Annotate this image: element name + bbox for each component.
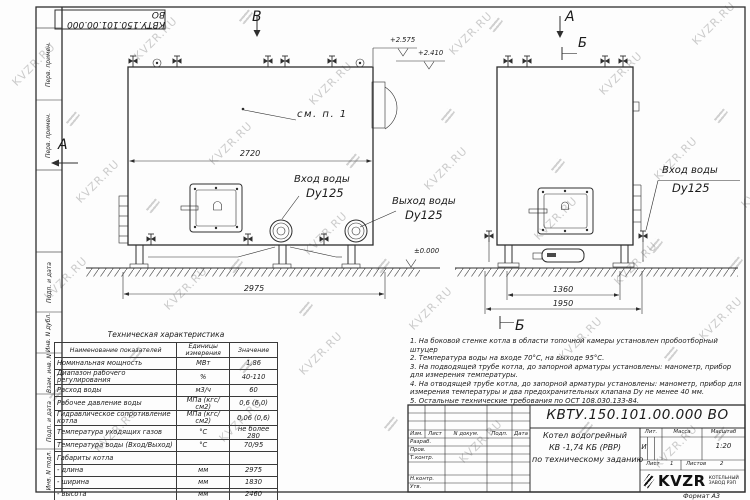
watermark-text: KVZR.RU: [447, 9, 496, 58]
col-izm: Изм.: [408, 432, 425, 437]
table-row: Температура воды (Вход/Выход)°С70/95: [55, 440, 278, 452]
kvzr-logo-icon: [642, 474, 655, 489]
level-2410: +2.410: [418, 50, 443, 57]
watermark-text: KVZR.RU: [302, 209, 351, 258]
watermark-text: KVZR.RU: [307, 59, 356, 108]
watermark-logo-icon: [550, 157, 565, 174]
section-label-b-top: Б: [578, 37, 587, 50]
watermark-logo-icon: [375, 257, 390, 274]
note-item: 2. Температура воды на входе 70°С, на вы…: [410, 354, 744, 363]
spec-table-title: Техническая характеристика: [54, 330, 278, 339]
sheets-value: 2: [720, 462, 723, 467]
dim-1950: 1950: [538, 300, 588, 308]
scale-value: 1:20: [702, 443, 745, 450]
stamp-perv-primen-2: Перв. примен.: [36, 100, 62, 170]
col-sign: Подп.: [487, 432, 512, 437]
row-utv: Утв.: [410, 485, 421, 490]
note-item: 3. На подводящей трубе котла, до запорно…: [410, 363, 744, 380]
watermark-logo-icon: [345, 152, 360, 169]
spec-header-name: Наименование показателей: [55, 343, 177, 358]
table-row: - высотамм2460: [55, 489, 278, 500]
doc-number-top-text: КВТУ.150.101.00.000 ВО: [55, 10, 165, 30]
spec-header-units: Единицы измерения: [177, 343, 230, 358]
watermark-text: KVZR.RU: [162, 264, 211, 313]
watermark-text: KVZR.RU: [422, 144, 471, 193]
spec-header-row: Наименование показателей Единицы измерен…: [55, 343, 278, 358]
watermark-text: KVZR.RU: [74, 157, 123, 206]
watermark-logo-icon: [440, 107, 455, 124]
stamp-perv-primen-1: Перв. примен.: [36, 28, 62, 100]
table-row: Диапазон рабочего регулирования%40-110: [55, 370, 278, 384]
view-label-a-left: А: [58, 138, 68, 152]
watermark-text: KVZR.RU: [690, 0, 739, 48]
sheets-label: Листов: [686, 462, 706, 467]
watermark-text: KVZR.RU: [297, 329, 346, 378]
kvzr-logo-subtext: КОТЕЛЬНЫЙ ЗАВОД РЭП: [709, 476, 739, 487]
table-row: Рабочее давление водыМПа (кгс/см2)0,6 (6…: [55, 397, 278, 411]
dim-2975: 2975: [229, 285, 279, 293]
row-prov: Пров.: [410, 448, 426, 453]
watermark-text: KVZR.RU: [207, 119, 256, 168]
watermark-text: KVZR.RU: [457, 417, 506, 466]
outlet-dn: Dy125: [405, 210, 443, 222]
row-razrab: Разраб.: [410, 440, 431, 445]
spec-header-value: Значение: [230, 343, 278, 358]
row-nkontr: Н.контр.: [410, 477, 434, 482]
watermark-text: KVZR.RU: [697, 294, 746, 343]
table-row: Расход водым3/ч60: [55, 384, 278, 396]
watermark-text: KVZR.RU: [597, 49, 646, 98]
stamp-podp-data-1: Подп. и дата: [36, 252, 62, 312]
col-doc: N докум.: [445, 432, 487, 437]
title-doc-number: КВТУ.150.101.00.000 ВО: [530, 409, 745, 423]
note-item: 4. На отводящей трубе котла, до запорной…: [410, 380, 744, 397]
watermark-logo-icon: [383, 415, 398, 432]
table-row: Габариты котла: [55, 452, 278, 464]
view-label-a-right: А: [565, 10, 575, 24]
watermark-logo-icon: [145, 197, 160, 214]
watermark-logo-icon: [728, 255, 743, 272]
section-label-b-bottom: Б: [515, 319, 525, 333]
kvzr-logo-text: KVZR: [658, 472, 706, 490]
outlet-label: Выход воды: [392, 197, 456, 207]
watermark-logo-icon: [238, 8, 253, 25]
watermark-text: KVZR.RU: [532, 194, 581, 243]
kvzr-sub-2: ЗАВОД РЭП: [709, 481, 739, 486]
drawing-sheet: KVZR.RUKVZR.RUKVZR.RUKVZR.RUKVZR.RUKVZR.…: [0, 0, 750, 500]
watermark-text: KVZR.RU: [739, 162, 750, 211]
table-row: - ширинамм1830: [55, 476, 278, 488]
product-name-1: Котел водогрейный: [532, 432, 638, 440]
see-note-callout: см. п. 1: [297, 110, 348, 120]
table-row: Температура уходящих газов°Сне более 280: [55, 425, 278, 439]
doc-number-top: КВТУ.150.101.00.000 ВО: [55, 10, 165, 29]
inlet-dn-right: Dy125: [672, 183, 710, 195]
sheet-value: 1: [670, 462, 673, 467]
watermark-logo-icon: [298, 300, 313, 317]
sheet-label: Лист: [646, 462, 660, 467]
row-tkontr: Т.контр.: [410, 456, 433, 461]
company-logo: KVZR КОТЕЛЬНЫЙ ЗАВОД РЭП: [642, 471, 744, 491]
note-item: 5. Остальные технические требования по О…: [410, 397, 744, 406]
mass-header: Масса: [662, 430, 702, 435]
spec-table: Наименование показателей Единицы измерен…: [54, 342, 278, 500]
watermark-text: KVZR.RU: [407, 284, 456, 333]
dim-1360: 1360: [538, 286, 588, 294]
lit-value: И: [640, 444, 648, 451]
product-name-3: по техническому заданию: [532, 456, 638, 464]
col-list: Лист: [425, 432, 445, 437]
lit-header: Лит.: [640, 430, 662, 435]
spec-table-body: Номинальная мощностьМВт1,86Диапазон рабо…: [55, 358, 278, 500]
notes-list: 1. На боковой стенке котла в области топ…: [410, 337, 744, 405]
inlet-label-right: Вход воды: [662, 166, 718, 176]
dim-2720: 2720: [225, 150, 275, 158]
table-row: - длинамм2975: [55, 464, 278, 476]
note-item: 1. На боковой стенке котла в области топ…: [410, 337, 744, 354]
watermark-logo-icon: [228, 257, 243, 274]
view-label-b: В: [252, 10, 262, 24]
col-date: Дата: [512, 432, 530, 437]
product-name-2: КВ -1,74 КБ (РВР): [532, 444, 638, 452]
format-label: Формат А3: [683, 493, 720, 500]
level-2575: +2.575: [390, 37, 415, 44]
watermark-logo-icon: [713, 107, 728, 124]
inlet-label-left: Вход воды: [294, 175, 350, 185]
level-zero: ±0.000: [414, 248, 439, 255]
inlet-dn-left: Dy125: [306, 188, 344, 200]
table-row: Гидравлическое сопротивление котлаМПа (к…: [55, 411, 278, 425]
scale-header: Масштаб: [702, 430, 745, 435]
watermark-logo-icon: [65, 110, 80, 127]
table-row: Номинальная мощностьМВт1,86: [55, 358, 278, 370]
